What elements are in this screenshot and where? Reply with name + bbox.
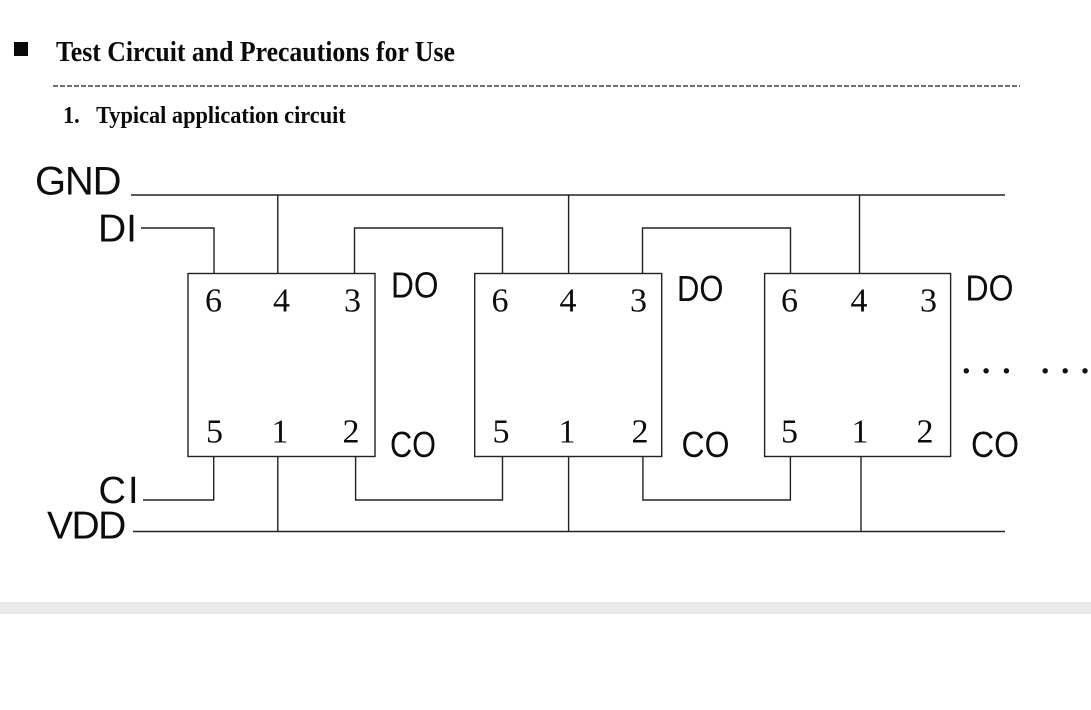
svg-text:5: 5 [493, 414, 510, 451]
svg-text:DO: DO [966, 268, 1014, 309]
svg-text:5: 5 [781, 414, 798, 451]
svg-text:2: 2 [632, 414, 649, 451]
svg-text:1: 1 [272, 414, 289, 451]
svg-text:2: 2 [343, 414, 360, 451]
svg-text:GND: GND [35, 160, 120, 204]
svg-text:DO: DO [677, 268, 724, 309]
svg-text:2: 2 [917, 414, 934, 451]
svg-text:5: 5 [206, 414, 223, 451]
svg-text:4: 4 [851, 283, 868, 320]
svg-text:6: 6 [781, 283, 798, 320]
svg-text:3: 3 [630, 283, 647, 320]
svg-text:1: 1 [559, 414, 576, 451]
svg-text:3: 3 [920, 283, 937, 320]
svg-text:DO: DO [391, 265, 439, 306]
svg-text:CO: CO [971, 424, 1019, 465]
svg-text:DI: DI [98, 208, 137, 251]
svg-text:VDD: VDD [47, 505, 125, 548]
svg-text:1: 1 [852, 414, 869, 451]
svg-text:CO: CO [682, 424, 730, 465]
svg-text:4: 4 [273, 283, 290, 320]
svg-text:6: 6 [205, 283, 222, 320]
svg-text:6: 6 [492, 283, 509, 320]
svg-text:CO: CO [390, 424, 436, 465]
svg-text:3: 3 [344, 283, 361, 320]
svg-text:4: 4 [560, 283, 577, 320]
